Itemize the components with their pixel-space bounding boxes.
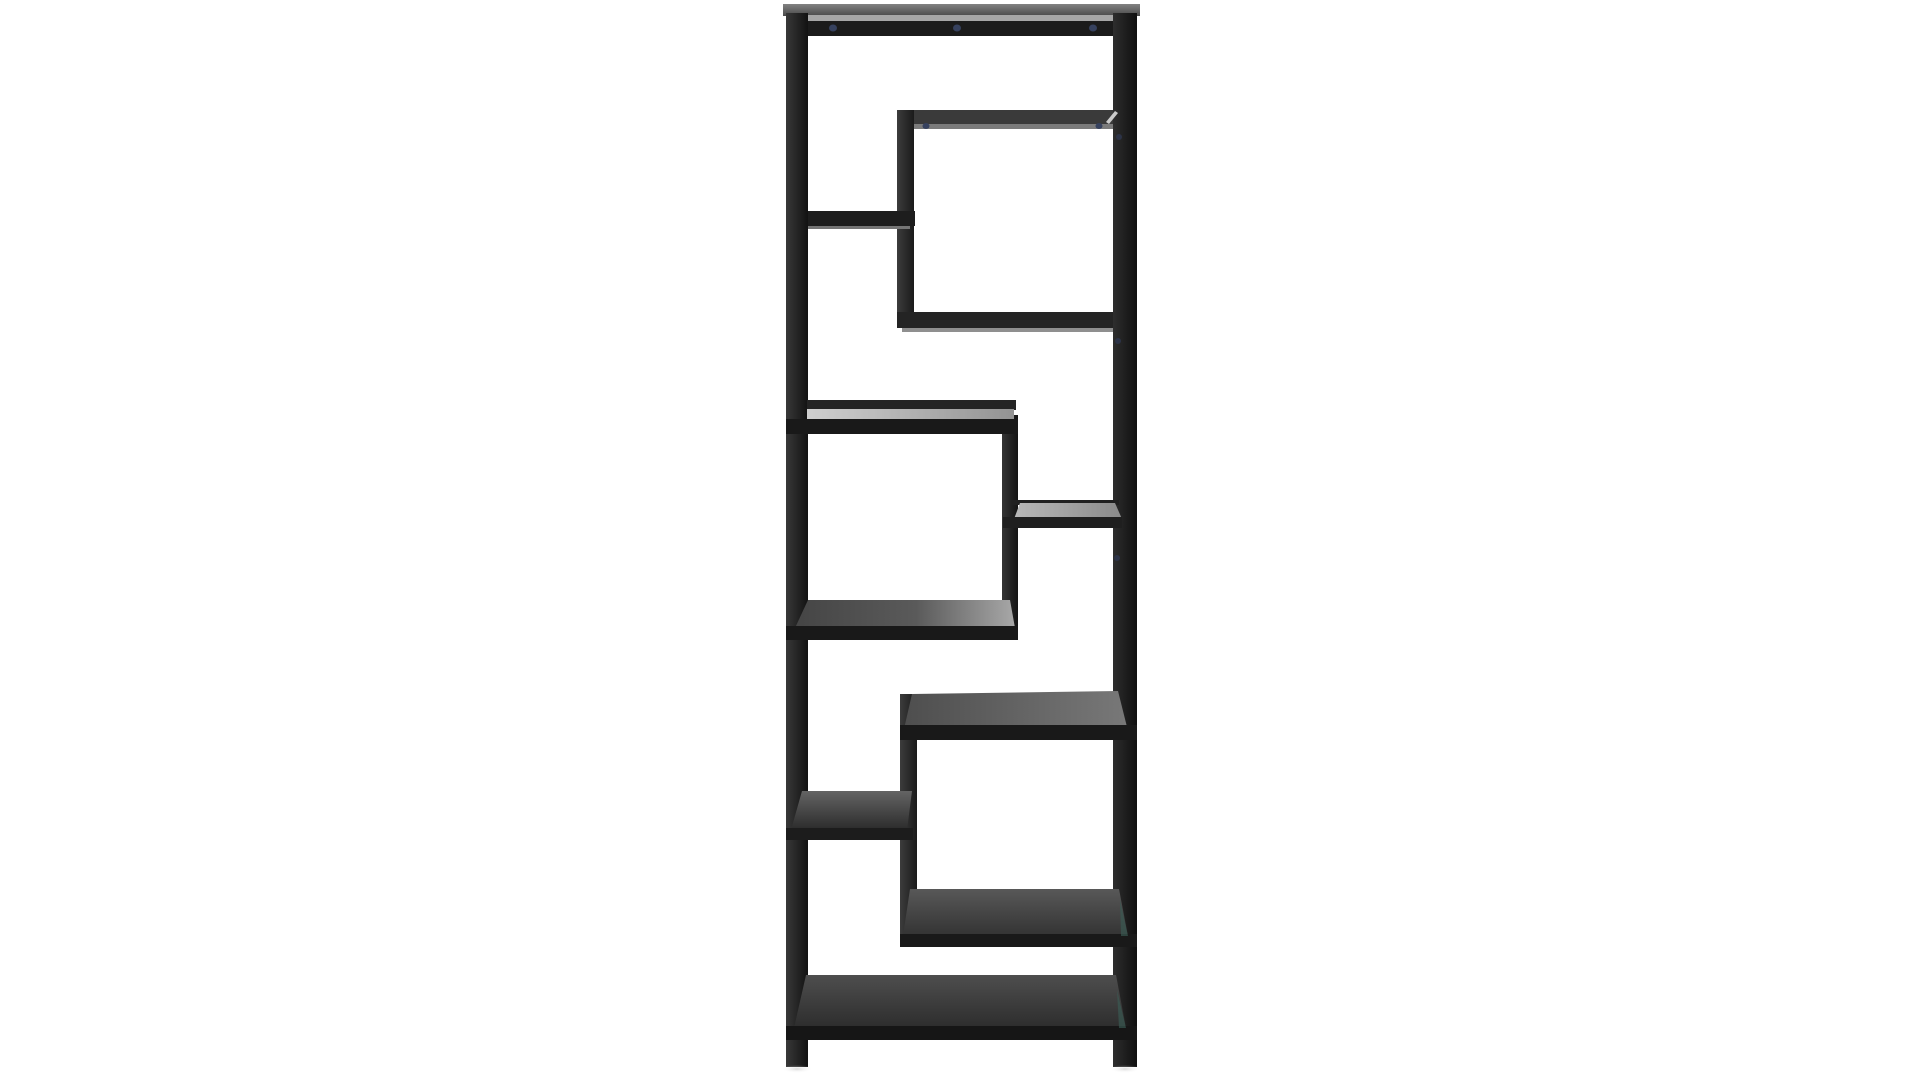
lower-box-top-glass bbox=[904, 691, 1127, 729]
top-glass-strip bbox=[789, 15, 1135, 22]
screw-right-post-3 bbox=[1114, 555, 1120, 561]
foot-shadow-right bbox=[1109, 1065, 1141, 1073]
shelf-a-strip bbox=[792, 226, 910, 229]
shelf-g-front-bar bbox=[786, 1026, 1137, 1040]
product-photo-black-shelving-unit bbox=[0, 0, 1920, 1080]
screw-upper-box-2 bbox=[1096, 123, 1103, 129]
screw-top-1 bbox=[829, 25, 837, 32]
shelf-b-back-rail bbox=[807, 400, 1016, 410]
shelf-b-front-bar bbox=[786, 419, 1018, 434]
shelf-d-glass bbox=[795, 600, 1015, 628]
upper-box-bottom-bar bbox=[897, 312, 1137, 328]
lower-box-bottom-glass bbox=[903, 889, 1128, 936]
shelf-d-front-bar bbox=[786, 626, 1018, 640]
screw-upper-box-1 bbox=[923, 123, 930, 129]
shelf-f-glass bbox=[791, 791, 912, 830]
top-surface bbox=[783, 4, 1140, 16]
shelf-f-front-bar bbox=[786, 828, 913, 840]
lower-box-top-front-bar bbox=[900, 725, 1137, 740]
screw-right-post-2 bbox=[1115, 338, 1121, 344]
lower-box-bottom-front-bar bbox=[900, 934, 1137, 947]
shelving-unit-illustration bbox=[0, 0, 1920, 1080]
upper-box-bottom-strip bbox=[902, 328, 1130, 332]
screw-right-post-1 bbox=[1116, 134, 1122, 140]
shelf-b-glass bbox=[807, 409, 1014, 420]
screw-top-2 bbox=[953, 25, 961, 32]
shelf-c-front-bar bbox=[1003, 517, 1122, 528]
screw-top-3 bbox=[1089, 25, 1097, 32]
top-apron-bar bbox=[786, 21, 1137, 36]
left-post bbox=[786, 13, 808, 1067]
foot-shadow-left bbox=[781, 1065, 813, 1073]
shelf-g-glass bbox=[794, 975, 1126, 1028]
upper-box-top-bar bbox=[897, 110, 1137, 124]
white-studio-background bbox=[0, 0, 1920, 1080]
shelf-c-glass bbox=[1014, 503, 1122, 519]
